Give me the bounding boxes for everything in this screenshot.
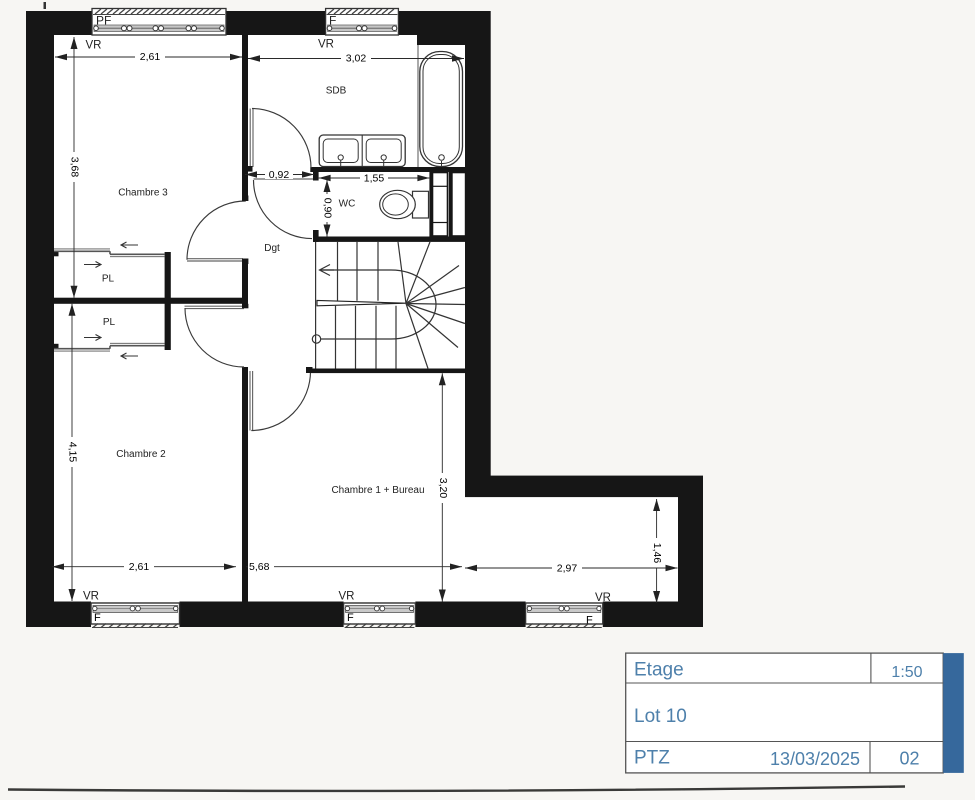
svg-text:Etage: Etage: [634, 660, 684, 681]
svg-text:WC: WC: [339, 199, 356, 210]
svg-text:VR: VR: [339, 591, 355, 603]
svg-text:02: 02: [899, 749, 919, 769]
svg-text:VR: VR: [595, 592, 611, 604]
svg-text:1,46: 1,46: [651, 543, 663, 564]
svg-text:F: F: [329, 14, 336, 28]
svg-text:2,61: 2,61: [140, 51, 161, 63]
svg-text:3,20: 3,20: [437, 478, 449, 499]
svg-text:PL: PL: [103, 317, 116, 328]
svg-text:13/03/2025: 13/03/2025: [770, 749, 860, 769]
svg-text:VR: VR: [86, 39, 102, 51]
svg-text:F: F: [94, 612, 101, 624]
svg-text:PF: PF: [96, 14, 111, 28]
svg-text:PL: PL: [102, 274, 115, 285]
svg-text:2,61: 2,61: [129, 561, 150, 573]
svg-text:0,92: 0,92: [269, 169, 290, 181]
svg-text:5,68: 5,68: [249, 561, 270, 573]
svg-text:3,68: 3,68: [69, 157, 81, 178]
svg-text:VR: VR: [318, 39, 334, 51]
svg-text:3,02: 3,02: [346, 53, 367, 65]
svg-text:VR: VR: [83, 591, 99, 603]
svg-text:0,90: 0,90: [322, 198, 334, 219]
svg-text:4,15: 4,15: [67, 442, 79, 463]
svg-text:Dgt: Dgt: [264, 243, 280, 254]
svg-text:SDB: SDB: [326, 86, 347, 97]
svg-text:Lot 10: Lot 10: [634, 706, 687, 727]
svg-text:PTZ: PTZ: [634, 748, 670, 769]
svg-text:1,55: 1,55: [364, 173, 385, 185]
svg-text:2,97: 2,97: [557, 563, 578, 575]
svg-text:Chambre 2: Chambre 2: [116, 449, 166, 460]
svg-text:1:50: 1:50: [891, 664, 922, 681]
svg-text:Chambre 3: Chambre 3: [118, 188, 168, 199]
svg-text:F: F: [347, 612, 354, 624]
svg-text:Chambre 1 + Bureau: Chambre 1 + Bureau: [331, 485, 424, 496]
